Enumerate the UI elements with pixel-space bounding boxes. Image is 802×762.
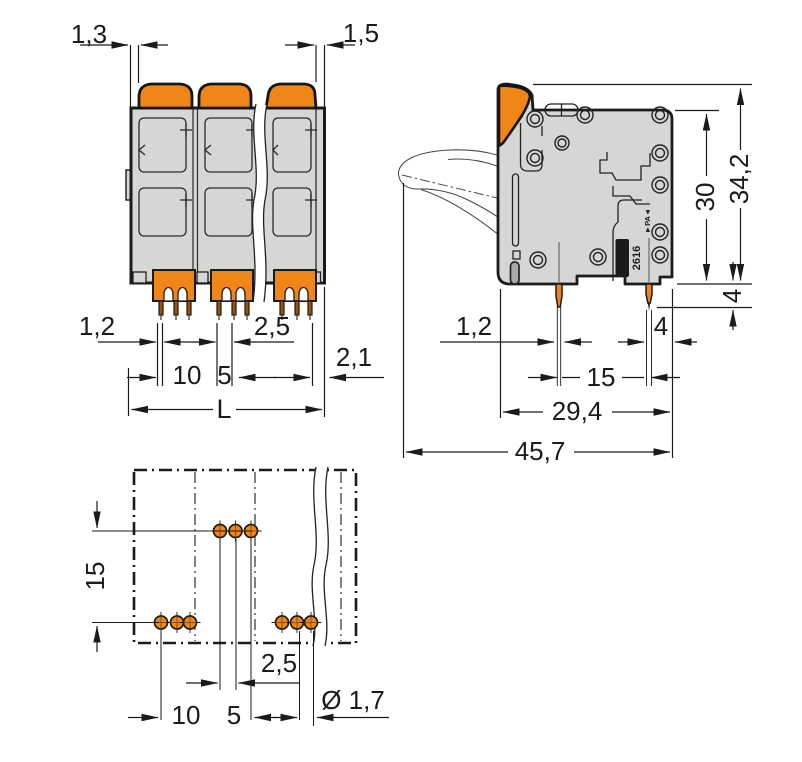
- wago-logo-text: WAGO: [619, 245, 628, 270]
- extension-lines: [313, 287, 325, 417]
- lever-2: [199, 84, 251, 108]
- bottom-block: [197, 272, 208, 283]
- bottom-view: 15 2,5 10 5 Ø 1,7: [80, 467, 389, 730]
- dim-label-end-offset: 2,1: [336, 342, 372, 372]
- dim-label-hole-diameter: Ø 1,7: [321, 685, 385, 715]
- dim-label-body-height: 30: [690, 183, 720, 212]
- material-marking: ►PA◄: [643, 209, 652, 234]
- front-body-outline: [131, 108, 325, 283]
- dim-label-lever-clearance-left: 1,3: [71, 19, 107, 49]
- extension-lines: [131, 45, 139, 107]
- terminal-block-dimension-drawing: 1,3 1,5 1,2 2,5 10 5 2,1: [0, 0, 802, 762]
- dim-label-overall-length: L: [216, 394, 231, 424]
- extension-lines: [316, 45, 325, 107]
- dim-label-pin-pitch: 2,5: [254, 311, 290, 341]
- dim-label-row-spacing: 15: [80, 562, 110, 591]
- technical-drawing-page: 1,3 1,5 1,2 2,5 10 5 2,1: [0, 0, 802, 762]
- dim-label-lever-clearance-right: 1,5: [343, 18, 379, 48]
- dim-label-overall-height: 34,2: [724, 154, 754, 205]
- bottom-block: [133, 272, 146, 283]
- dim-label-pad-pitch: 2,5: [261, 648, 297, 678]
- dim-label-overall-depth: 45,7: [515, 436, 566, 466]
- lever-centerline: [402, 175, 497, 198]
- side-pin-left: [556, 284, 562, 307]
- dim-label-bottom-pole-pitch: 10: [172, 700, 201, 730]
- front-body: [126, 108, 325, 283]
- front-view: 1,3 1,5 1,2 2,5 10 5 2,1: [71, 18, 384, 424]
- lever-1: [139, 84, 192, 108]
- pin-housing-1: [153, 270, 195, 320]
- lever-open-phantom: [398, 150, 497, 234]
- front-levers: [139, 84, 316, 108]
- side-view: WAGO 2616 ►PA◄ 1,2 4 15: [398, 84, 754, 466]
- side-pin-right: [646, 284, 652, 303]
- dim-label-pin-spacing: 15: [587, 362, 616, 392]
- side-lower-slot: [511, 262, 520, 284]
- front-pin-housings: [153, 270, 316, 320]
- front-break-line: [253, 104, 268, 302]
- dim-label-pin-width: 1,2: [79, 311, 115, 341]
- dim-label-pole-pitch: 10: [173, 360, 202, 390]
- dim-label-body-depth: 29,4: [552, 396, 603, 426]
- pin-housing-2: [211, 270, 253, 320]
- dim-label-pin-to-edge: 4: [654, 311, 668, 341]
- lever-3: [266, 84, 316, 108]
- dim-label-pin-length: 4: [717, 289, 747, 303]
- dim-label-bottom-group-span: 5: [227, 700, 241, 730]
- dim-label-side-pin-width: 1,2: [456, 311, 492, 341]
- series-marking: 2616: [631, 246, 643, 270]
- dim-label-group-span: 5: [217, 360, 231, 390]
